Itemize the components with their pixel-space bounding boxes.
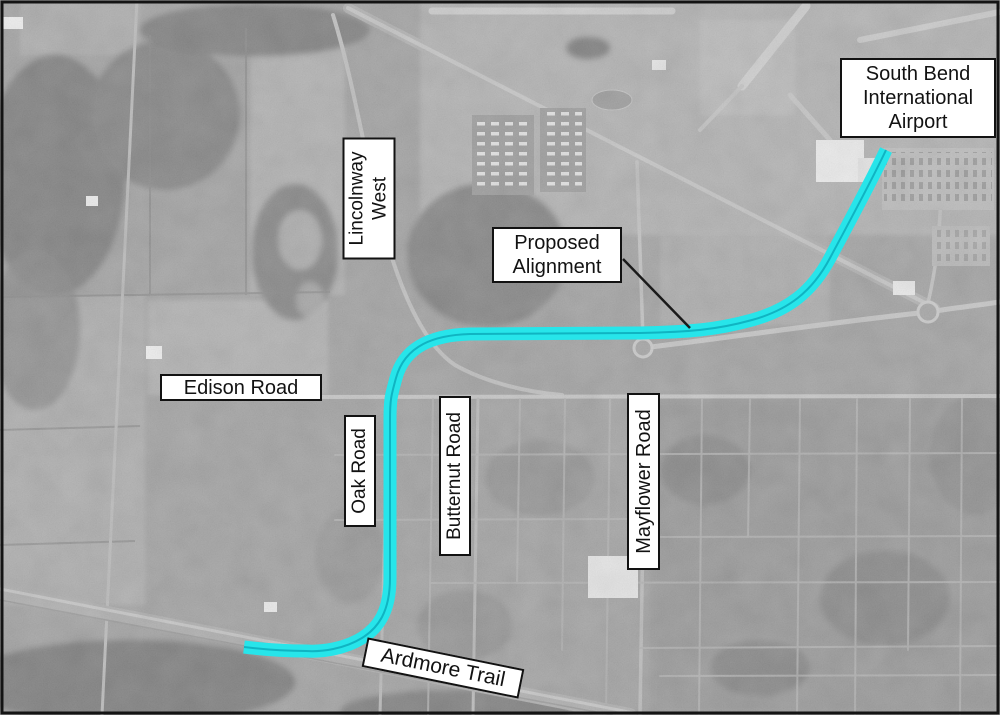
label-lincolnway-west: Lincolnway West bbox=[343, 138, 396, 260]
label-oak-road: Oak Road bbox=[344, 415, 376, 527]
label-line: Lincolnway bbox=[346, 152, 369, 246]
label-edison-road: Edison Road bbox=[160, 374, 322, 401]
label-line: South Bend bbox=[866, 62, 971, 86]
label-line: Oak Road bbox=[349, 428, 372, 514]
label-line: Mayflower Road bbox=[632, 409, 656, 554]
label-butternut-road: Butternut Road bbox=[439, 396, 471, 556]
label-line: Edison Road bbox=[184, 376, 299, 400]
label-line: Butternut Road bbox=[444, 412, 467, 540]
label-line: Alignment bbox=[513, 255, 602, 279]
label-line: West bbox=[369, 177, 392, 220]
aerial-map: South Bend International Airport Lincoln… bbox=[0, 0, 1000, 715]
label-line: International bbox=[863, 86, 973, 110]
label-proposed-alignment: Proposed Alignment bbox=[492, 227, 622, 283]
label-line: Proposed bbox=[514, 231, 600, 255]
label-mayflower-road: Mayflower Road bbox=[627, 393, 660, 570]
label-south-bend-international-airport: South Bend International Airport bbox=[840, 58, 996, 138]
label-line: Airport bbox=[889, 110, 948, 134]
